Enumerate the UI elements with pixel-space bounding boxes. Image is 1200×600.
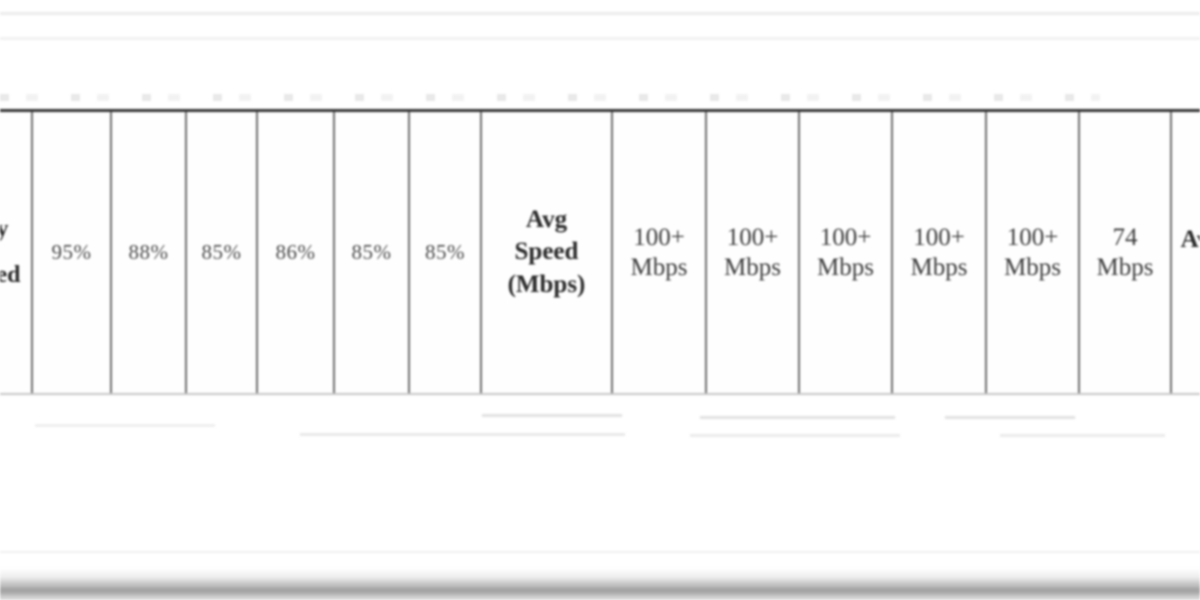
faint-row-below-artifact: [700, 416, 895, 419]
percent-value: 88%: [129, 240, 169, 265]
avg-speed-header-cell: Avg Speed (Mbps): [482, 112, 613, 393]
clipped-cell-left: y ed: [0, 112, 33, 393]
page-edge-band: [0, 568, 1200, 600]
percent-cell: 85%: [410, 112, 482, 393]
faint-row-below-artifact: [945, 416, 1075, 419]
speed-unit: Mbps: [1004, 253, 1061, 283]
speed-unit: Mbps: [1097, 253, 1154, 283]
clipped-cell-right: Av: [1172, 112, 1200, 393]
speed-value: 100+: [724, 223, 781, 253]
speed-unit: Mbps: [911, 253, 968, 283]
faint-rule-bottom: [0, 551, 1200, 553]
speed-cell: 74 Mbps: [1080, 112, 1172, 393]
speed-value: 100+: [1004, 223, 1061, 253]
speed-unit: Mbps: [724, 253, 781, 283]
table-row: y ed 95% 88% 85% 86% 85% 85% Avg Speed (…: [0, 109, 1200, 395]
clipped-left-line2: ed: [0, 253, 21, 299]
percent-cell: 85%: [187, 112, 258, 393]
clipped-cell-left-text: y ed: [0, 207, 21, 298]
speed-cell: 100+ Mbps: [800, 112, 893, 393]
percent-cell: 86%: [258, 112, 335, 393]
faint-row-below-artifact: [690, 434, 900, 437]
speed-value: 74: [1097, 223, 1154, 253]
faint-rule-top: [0, 12, 1200, 15]
faint-row-below-artifact: [1000, 434, 1165, 437]
avg-speed-header-line2: Speed: [508, 236, 586, 269]
clipped-left-line1: y: [0, 207, 21, 253]
avg-speed-header-line3: (Mbps): [508, 269, 586, 302]
percent-value: 85%: [425, 240, 465, 265]
faint-row-below-artifact: [35, 424, 215, 427]
percent-cell: 85%: [335, 112, 410, 393]
speed-value: 100+: [817, 223, 874, 253]
percent-cell: 95%: [33, 112, 112, 393]
faint-row-below-artifact: [300, 433, 625, 436]
percent-value: 95%: [52, 240, 92, 265]
faint-rule-top-2: [0, 37, 1200, 40]
percent-value: 85%: [352, 240, 392, 265]
speed-cell: 100+ Mbps: [707, 112, 800, 393]
clipped-row-above-artifact: [0, 94, 1100, 101]
speed-unit: Mbps: [631, 253, 688, 283]
clipped-cell-right-text: Av: [1181, 226, 1200, 254]
speed-value: 100+: [911, 223, 968, 253]
speed-unit: Mbps: [817, 253, 874, 283]
percent-cell: 88%: [112, 112, 187, 393]
document-sheet: y ed 95% 88% 85% 86% 85% 85% Avg Speed (…: [0, 0, 1200, 600]
speed-cell: 100+ Mbps: [613, 112, 707, 393]
percent-value: 85%: [202, 240, 242, 265]
speed-cell: 100+ Mbps: [987, 112, 1080, 393]
speed-value: 100+: [631, 223, 688, 253]
percent-value: 86%: [276, 240, 316, 265]
faint-row-below-artifact: [482, 414, 622, 417]
speed-cell: 100+ Mbps: [893, 112, 987, 393]
avg-speed-header-line1: Avg: [508, 204, 586, 237]
